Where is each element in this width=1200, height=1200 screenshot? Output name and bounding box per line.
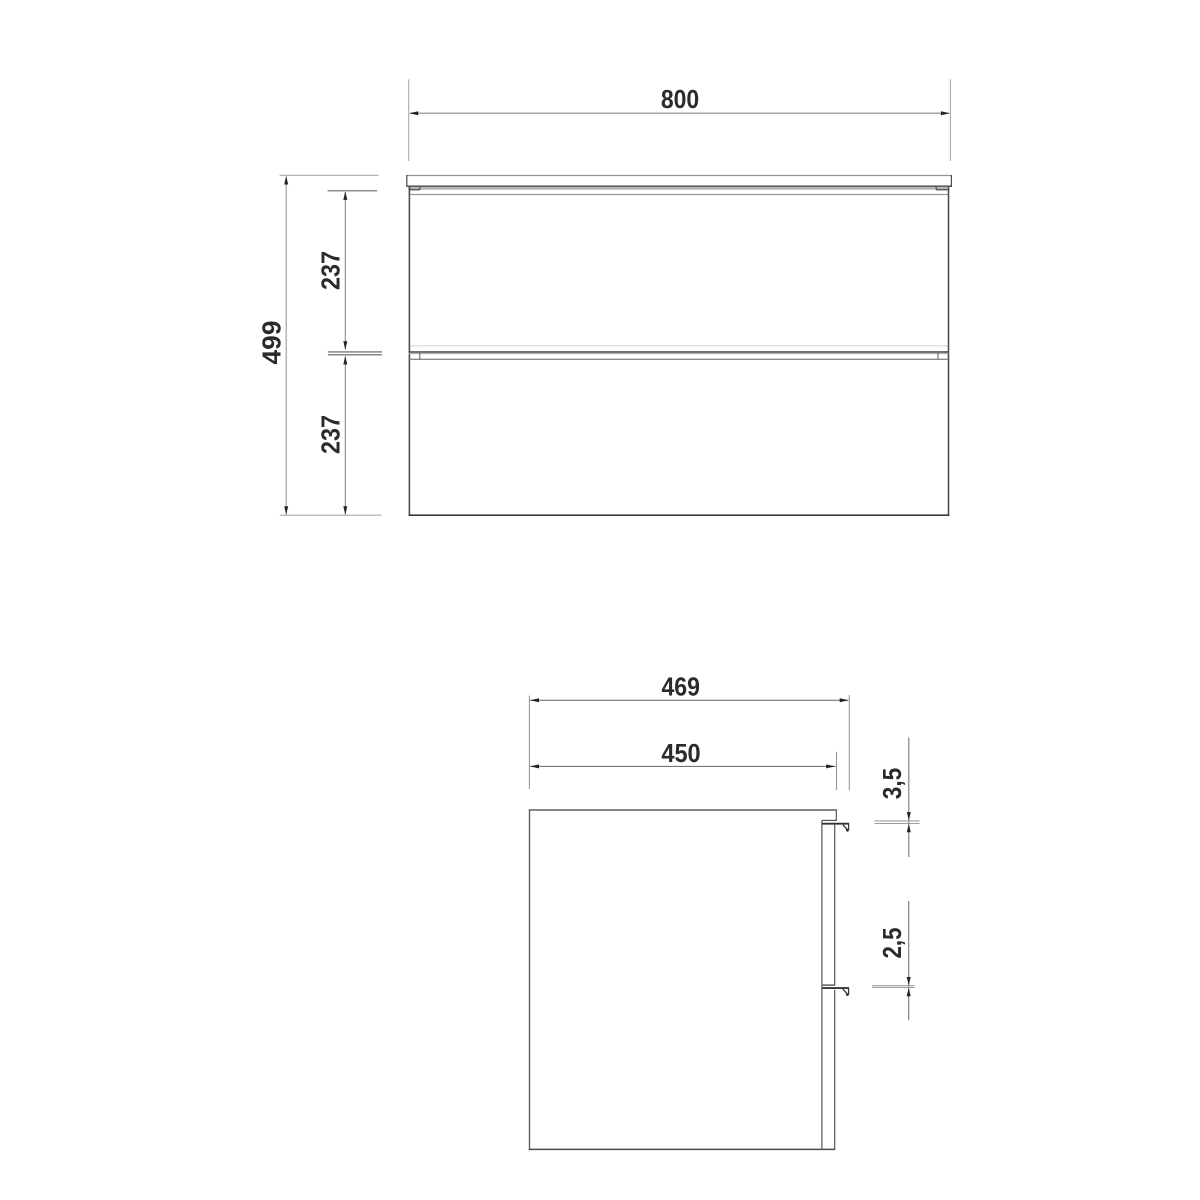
svg-text:237: 237 [316,415,346,454]
svg-text:450: 450 [661,738,700,768]
svg-text:237: 237 [316,251,346,290]
svg-text:469: 469 [661,671,700,701]
svg-text:800: 800 [661,84,699,114]
svg-text:499: 499 [257,321,287,365]
svg-text:2,5: 2,5 [877,928,907,959]
svg-text:3,5: 3,5 [877,768,907,800]
